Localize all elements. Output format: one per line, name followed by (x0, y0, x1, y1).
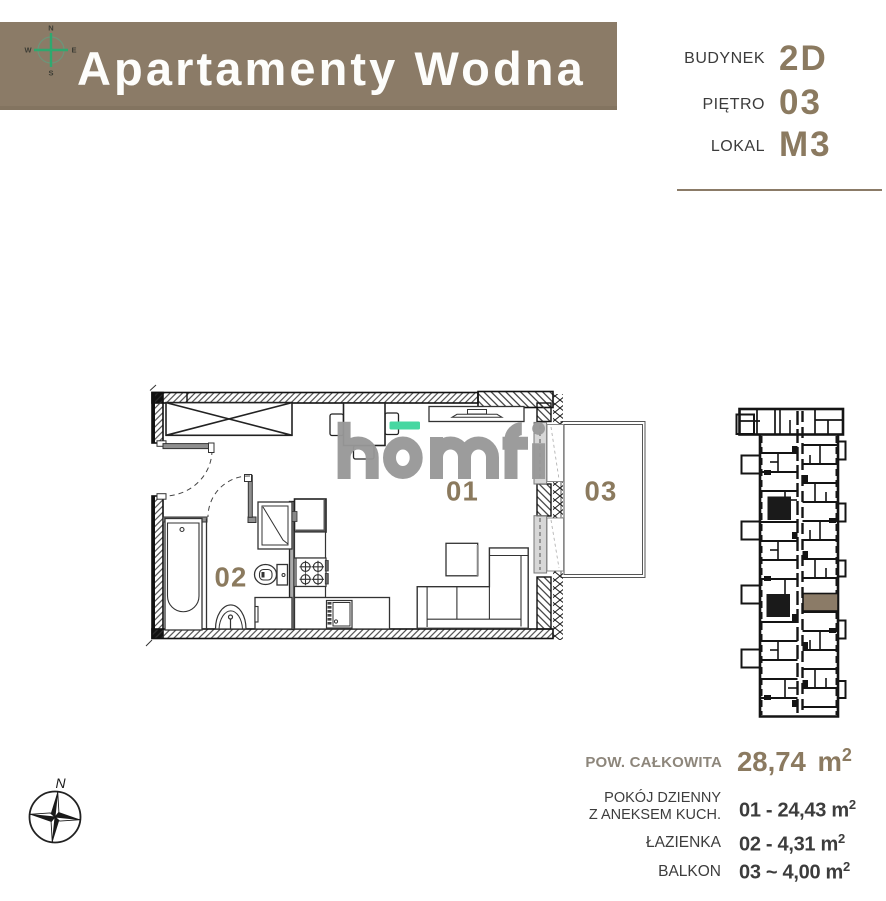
svg-text:01: 01 (446, 476, 479, 507)
svg-text:S: S (48, 69, 53, 78)
svg-text:03: 03 (585, 476, 618, 507)
svg-text:W: W (24, 46, 32, 55)
svg-text:N: N (48, 24, 53, 33)
svg-text:E: E (71, 46, 76, 55)
svg-text:N: N (55, 775, 66, 791)
svg-text:02: 02 (215, 562, 248, 593)
